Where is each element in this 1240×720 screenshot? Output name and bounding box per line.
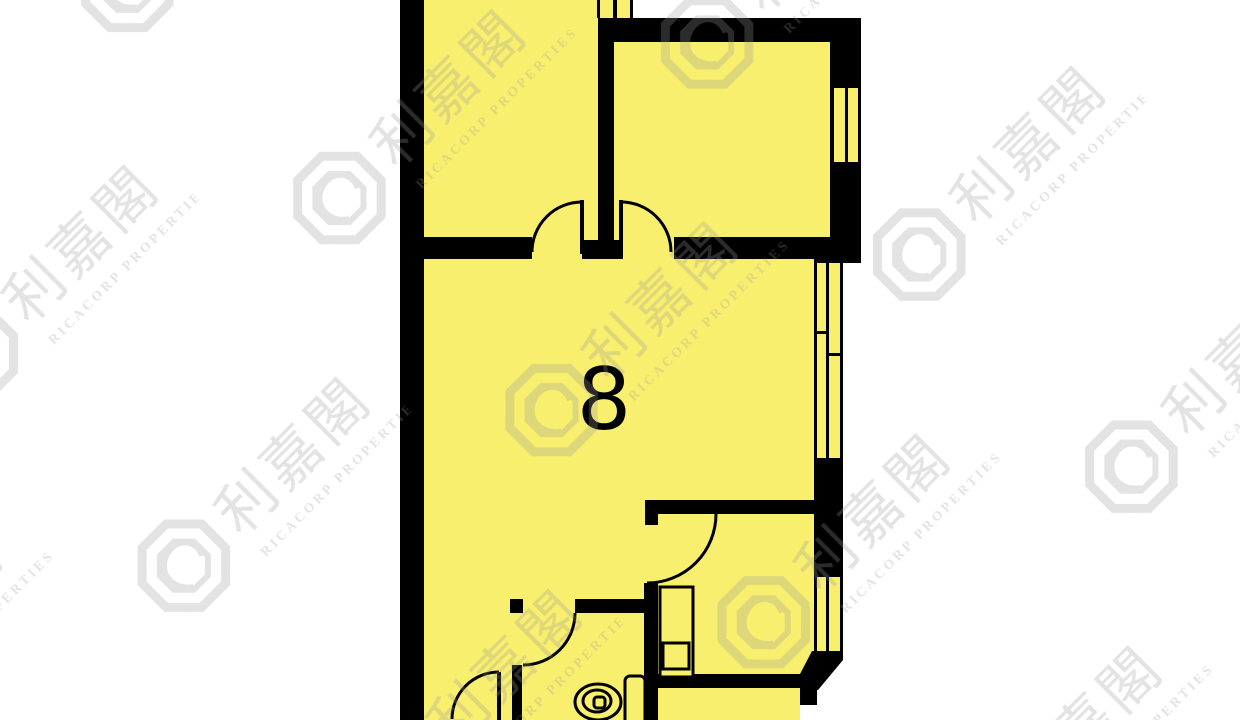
floorplan-svg: 8 利嘉閣 RICACORP PROPERTIES 利嘉閣 RIC — [0, 0, 1240, 720]
watermark-overlay — [0, 0, 1240, 720]
floorplan-image: 8 利嘉閣 RICACORP PROPERTIES 利嘉閣 RIC — [0, 0, 1240, 720]
